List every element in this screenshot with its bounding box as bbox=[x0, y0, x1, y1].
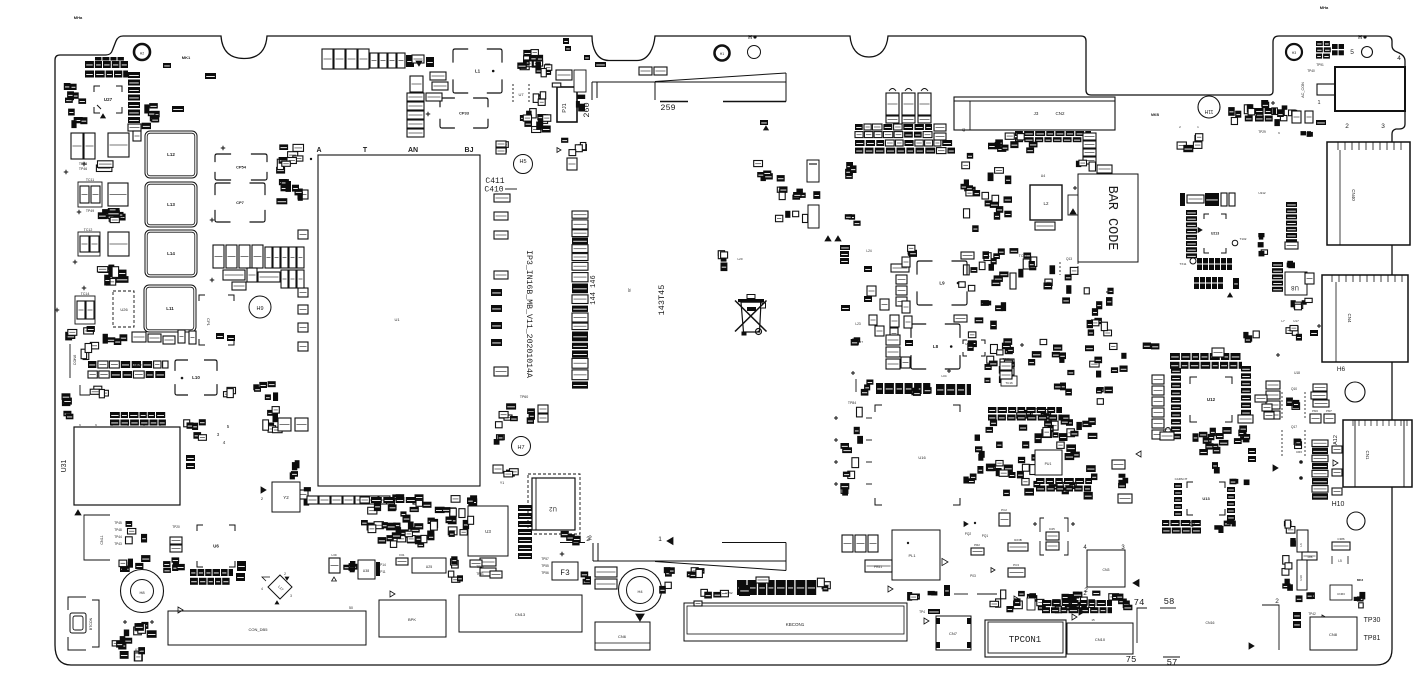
svg-text:U3: U3 bbox=[485, 529, 491, 534]
svg-text:CON_DB5: CON_DB5 bbox=[249, 627, 269, 632]
svg-text:TP30: TP30 bbox=[1364, 617, 1381, 624]
svg-text:CN2: CN2 bbox=[1055, 111, 1064, 116]
svg-text:PM3: PM3 bbox=[1312, 409, 1318, 413]
svg-text:MK3: MK3 bbox=[1357, 578, 1364, 582]
svg-text:L10: L10 bbox=[192, 375, 200, 380]
svg-text:U31: U31 bbox=[61, 459, 68, 472]
svg-text:CN6: CN6 bbox=[618, 634, 627, 639]
svg-text:U27: U27 bbox=[104, 97, 113, 102]
svg-text:L12: L12 bbox=[167, 152, 175, 157]
svg-text:PQ2: PQ2 bbox=[965, 532, 972, 536]
svg-text:4: 4 bbox=[1397, 55, 1401, 62]
svg-text:A12: A12 bbox=[1333, 435, 1339, 445]
svg-text:L20: L20 bbox=[737, 257, 742, 261]
svg-text:U21: U21 bbox=[965, 342, 971, 346]
svg-text:2: 2 bbox=[1275, 598, 1279, 605]
svg-text:TP48: TP48 bbox=[114, 528, 122, 532]
svg-text:U17: U17 bbox=[1293, 319, 1299, 323]
svg-text:L8: L8 bbox=[933, 344, 939, 349]
svg-text:TP60: TP60 bbox=[520, 395, 528, 399]
svg-text:TPCON1: TPCON1 bbox=[1009, 635, 1041, 645]
svg-text:11H: 11H bbox=[1204, 108, 1213, 114]
svg-text:CR7: CR7 bbox=[857, 340, 863, 344]
svg-text:BAR CODE: BAR CODE bbox=[1104, 186, 1119, 251]
svg-text:J3: J3 bbox=[1034, 111, 1039, 116]
svg-text:1: 1 bbox=[658, 536, 662, 543]
svg-text:CP1: CP1 bbox=[206, 318, 211, 327]
svg-text:R270: R270 bbox=[1163, 427, 1171, 431]
svg-text:PR2: PR2 bbox=[974, 543, 980, 547]
svg-text:TC11: TC11 bbox=[86, 178, 94, 182]
svg-text:D45: D45 bbox=[1049, 527, 1055, 531]
svg-text:TP44: TP44 bbox=[114, 535, 122, 539]
svg-text:U26: U26 bbox=[120, 307, 128, 312]
svg-text:L39: L39 bbox=[331, 553, 336, 557]
svg-text:CN10: CN10 bbox=[1095, 637, 1106, 642]
svg-text:TC17: TC17 bbox=[1019, 254, 1028, 258]
svg-text:C386: C386 bbox=[1337, 537, 1345, 541]
svg-text:TP4: TP4 bbox=[919, 610, 925, 614]
svg-text:H1: H1 bbox=[720, 52, 725, 56]
svg-text:MHa: MHa bbox=[74, 15, 83, 20]
svg-text:2: 2 bbox=[1084, 587, 1088, 594]
svg-text:L5: L5 bbox=[1338, 559, 1342, 563]
svg-text:15: 15 bbox=[1091, 618, 1095, 622]
svg-text:Y1: Y1 bbox=[500, 481, 504, 485]
svg-text:TP91: TP91 bbox=[1316, 63, 1324, 67]
svg-text:AC_CON: AC_CON bbox=[1301, 82, 1305, 98]
svg-text:2: 2 bbox=[586, 536, 590, 543]
svg-text:57: 57 bbox=[1167, 658, 1178, 668]
svg-text:TP20: TP20 bbox=[172, 525, 180, 529]
svg-text:H7: H7 bbox=[517, 445, 524, 451]
svg-text:H: H bbox=[748, 35, 752, 41]
svg-text:CP33: CP33 bbox=[459, 110, 470, 115]
svg-text:T: T bbox=[363, 147, 368, 154]
svg-text:H8: H8 bbox=[139, 590, 145, 595]
svg-text:50: 50 bbox=[349, 606, 353, 610]
svg-text:TP40: TP40 bbox=[1307, 69, 1315, 73]
svg-text:TC16: TC16 bbox=[1002, 357, 1010, 361]
svg-text:TC16: TC16 bbox=[1005, 381, 1013, 385]
svg-text:F3: F3 bbox=[560, 569, 570, 578]
svg-text:P03: P03 bbox=[970, 574, 976, 578]
svg-text:TP11: TP11 bbox=[378, 570, 386, 574]
svg-text:U10: U10 bbox=[1299, 575, 1303, 581]
svg-text:3: 3 bbox=[1381, 123, 1385, 130]
svg-text:2: 2 bbox=[284, 572, 286, 576]
svg-text:TP42: TP42 bbox=[1308, 612, 1316, 616]
svg-text:U32: U32 bbox=[135, 648, 141, 652]
svg-text:5: 5 bbox=[1350, 49, 1354, 56]
svg-text:CN40: CN40 bbox=[1351, 189, 1356, 201]
svg-text:T102: T102 bbox=[1240, 237, 1247, 241]
svg-text:A: A bbox=[316, 147, 321, 154]
svg-text:H5: H5 bbox=[519, 159, 526, 165]
svg-text:L24: L24 bbox=[866, 249, 872, 253]
svg-text:259: 259 bbox=[660, 103, 675, 113]
svg-text:U7: U7 bbox=[518, 92, 524, 97]
svg-text:IP3_IN16B_MB_V11_20201014A: IP3_IN16B_MB_V11_20201014A bbox=[524, 250, 533, 378]
svg-text:TX11: TX11 bbox=[1180, 262, 1187, 266]
svg-text:H3: H3 bbox=[1292, 51, 1297, 55]
svg-text:TP81: TP81 bbox=[476, 572, 484, 576]
svg-text:CRT: CRT bbox=[1296, 442, 1302, 446]
svg-text:MK1: MK1 bbox=[182, 55, 191, 60]
svg-text:TC14: TC14 bbox=[81, 292, 90, 296]
svg-text:CP54: CP54 bbox=[236, 164, 247, 169]
svg-text:Q13: Q13 bbox=[1066, 257, 1072, 261]
svg-text:TP14: TP14 bbox=[378, 563, 386, 567]
svg-text:PC2: PC2 bbox=[1001, 508, 1007, 512]
svg-text:2: 2 bbox=[1345, 123, 1349, 130]
svg-text:3: 3 bbox=[290, 594, 292, 598]
svg-text:KBCON1: KBCON1 bbox=[786, 622, 805, 627]
svg-text:U1: U1 bbox=[394, 317, 400, 322]
svg-text:CN1: CN1 bbox=[1365, 450, 1370, 459]
svg-text:U38: U38 bbox=[363, 569, 369, 573]
svg-text:TP55: TP55 bbox=[541, 564, 549, 568]
svg-text:PJ1: PJ1 bbox=[562, 103, 568, 112]
svg-text:C152: C152 bbox=[725, 591, 733, 595]
svg-text:U8: U8 bbox=[1291, 284, 1299, 290]
svg-text:L2: L2 bbox=[1043, 201, 1049, 206]
svg-text:L14: L14 bbox=[167, 251, 175, 256]
svg-text:L04: L04 bbox=[941, 374, 946, 378]
svg-text:CR6: CR6 bbox=[1296, 450, 1302, 454]
svg-text:CN8: CN8 bbox=[1329, 632, 1338, 637]
svg-text:TP43: TP43 bbox=[114, 542, 122, 546]
svg-text:U13: U13 bbox=[1202, 496, 1210, 501]
svg-text:L1: L1 bbox=[475, 69, 481, 74]
svg-text:PM7: PM7 bbox=[1326, 409, 1332, 413]
svg-text:F86: F86 bbox=[1308, 555, 1313, 559]
svg-text:MKB: MKB bbox=[1151, 113, 1159, 117]
svg-text:U2: U2 bbox=[549, 505, 557, 511]
svg-text:BTCON: BTCON bbox=[89, 617, 93, 630]
svg-text:1: 1 bbox=[1317, 100, 1320, 106]
svg-text:U213: U213 bbox=[1211, 232, 1219, 236]
svg-text:U18: U18 bbox=[1294, 371, 1300, 375]
svg-text:L23: L23 bbox=[855, 322, 861, 326]
svg-text:TP80: TP80 bbox=[476, 565, 484, 569]
svg-text:AN: AN bbox=[408, 147, 418, 154]
svg-text:Y2: Y2 bbox=[283, 495, 289, 500]
svg-text:CN3: CN3 bbox=[1102, 568, 1109, 572]
svg-text:TP45: TP45 bbox=[114, 521, 122, 525]
svg-text:H4: H4 bbox=[637, 589, 643, 594]
svg-text:CN7: CN7 bbox=[949, 631, 958, 636]
svg-text:PC3: PC3 bbox=[1013, 563, 1019, 567]
svg-text:TP49: TP49 bbox=[86, 209, 94, 213]
svg-text:CN11: CN11 bbox=[100, 535, 104, 544]
svg-text:CON6: CON6 bbox=[73, 355, 77, 366]
svg-text:CN13: CN13 bbox=[515, 612, 526, 617]
svg-text:MK7: MK7 bbox=[134, 364, 141, 368]
svg-text:CN4: CN4 bbox=[1347, 313, 1352, 322]
svg-text:BPK: BPK bbox=[408, 617, 416, 622]
svg-text:H: H bbox=[1358, 35, 1362, 41]
svg-text:L7: L7 bbox=[1281, 319, 1285, 323]
svg-text:CP7: CP7 bbox=[236, 200, 245, 205]
svg-text:CN16: CN16 bbox=[1206, 621, 1215, 625]
svg-text:H10: H10 bbox=[1332, 501, 1345, 508]
svg-text:H9: H9 bbox=[256, 306, 263, 312]
svg-text:BJ: BJ bbox=[465, 147, 474, 154]
svg-text:H2: H2 bbox=[140, 52, 145, 56]
svg-text:L11: L11 bbox=[166, 306, 174, 311]
svg-text:L9: L9 bbox=[939, 281, 945, 286]
svg-text:58: 58 bbox=[1164, 597, 1175, 607]
svg-text:U16: U16 bbox=[918, 455, 926, 460]
svg-text:TP56: TP56 bbox=[541, 571, 549, 575]
svg-text:U12: U12 bbox=[1207, 397, 1216, 402]
svg-text:L6: L6 bbox=[1299, 543, 1303, 547]
svg-text:CAPACIT: CAPACIT bbox=[1175, 477, 1188, 481]
svg-text:CN63: CN63 bbox=[1337, 592, 1345, 596]
svg-text:PU1: PU1 bbox=[1045, 462, 1052, 466]
svg-text:L13: L13 bbox=[167, 202, 175, 207]
svg-text:R23B: R23B bbox=[1014, 538, 1022, 542]
svg-text:TC12: TC12 bbox=[84, 228, 93, 232]
svg-text:U212: U212 bbox=[1258, 191, 1266, 195]
svg-text:PQ1: PQ1 bbox=[982, 534, 989, 538]
svg-text:TP57: TP57 bbox=[541, 557, 549, 561]
svg-text:PL1: PL1 bbox=[908, 553, 916, 558]
svg-text:U25: U25 bbox=[426, 565, 432, 569]
svg-text:U4: U4 bbox=[1041, 174, 1046, 178]
svg-text:144 146: 144 146 bbox=[590, 275, 598, 304]
svg-text:TP84: TP84 bbox=[848, 401, 856, 405]
svg-text:TP46: TP46 bbox=[79, 167, 87, 171]
svg-text:74: 74 bbox=[1134, 598, 1145, 608]
svg-text:U6: U6 bbox=[213, 544, 219, 549]
svg-text:PR51: PR51 bbox=[874, 565, 882, 569]
svg-text:40: 40 bbox=[962, 128, 966, 132]
svg-text:143T45: 143T45 bbox=[657, 285, 667, 316]
svg-text:F01: F01 bbox=[399, 553, 405, 557]
svg-text:Q10: Q10 bbox=[1291, 387, 1297, 391]
svg-text:C410: C410 bbox=[484, 186, 503, 195]
svg-text:4: 4 bbox=[261, 587, 263, 591]
svg-text:75: 75 bbox=[1126, 655, 1137, 665]
svg-text:TP81: TP81 bbox=[1364, 635, 1381, 642]
svg-text:H6: H6 bbox=[1337, 366, 1346, 373]
svg-text:TP29: TP29 bbox=[1258, 130, 1266, 134]
svg-text:MHa: MHa bbox=[1320, 5, 1329, 10]
svg-text:Q17: Q17 bbox=[1291, 425, 1297, 429]
